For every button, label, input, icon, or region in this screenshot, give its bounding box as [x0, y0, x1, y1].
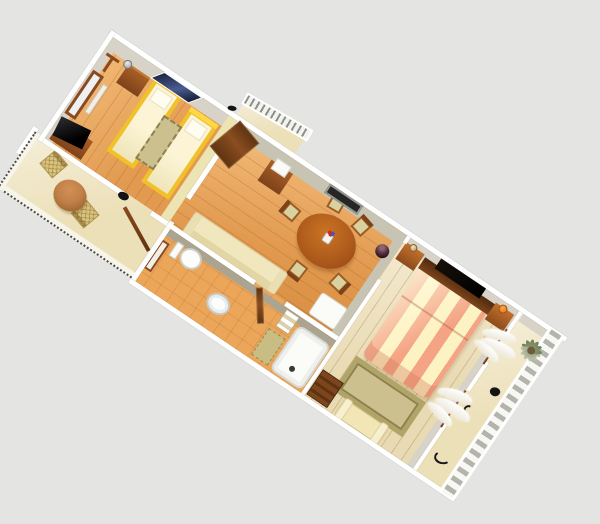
floorplan-render-viewport	[0, 0, 600, 524]
apartment-3d-plan	[7, 37, 561, 496]
bathroom-door[interactable]	[256, 288, 264, 324]
